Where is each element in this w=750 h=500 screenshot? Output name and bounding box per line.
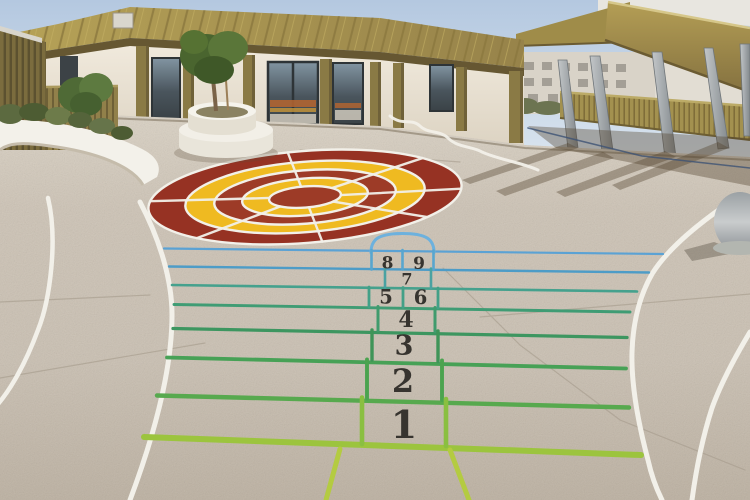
target-reflection	[270, 108, 316, 112]
playground-photo: 8 9 7 5 6 4 3 2 1	[0, 0, 750, 500]
rooftop-unit	[113, 13, 133, 28]
hopscotch-number-7: 7	[401, 270, 412, 289]
scene-canvas: 8 9 7 5 6 4 3 2 1	[0, 0, 750, 500]
hopscotch-number-4: 4	[398, 307, 413, 333]
planter-soil	[196, 106, 248, 118]
glass-door	[430, 65, 453, 111]
target-reflection	[270, 100, 316, 107]
hopscotch-number-1: 1	[391, 402, 417, 447]
floor-reflection	[335, 110, 361, 120]
hopscotch-number-8: 8	[382, 254, 394, 274]
glass-door	[152, 58, 180, 119]
hopscotch-number-6: 6	[414, 286, 428, 309]
hopscotch-number-9: 9	[413, 254, 425, 274]
foreground-shading	[0, 360, 750, 500]
hopscotch-number-3: 3	[395, 331, 414, 362]
hopscotch-number-5: 5	[379, 286, 393, 309]
hopscotch-number-2: 2	[392, 362, 414, 400]
floor-reflection	[270, 114, 316, 123]
target-reflection	[335, 103, 361, 108]
